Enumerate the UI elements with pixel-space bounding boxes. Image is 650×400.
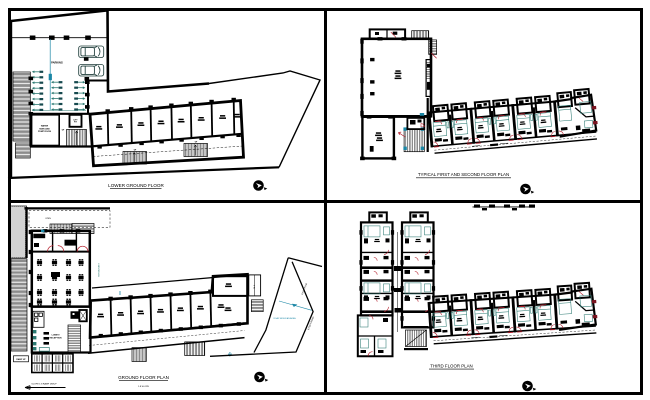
svg-text:WATER: WATER [41,125,49,128]
svg-text:PARKING: PARKING [51,61,63,65]
svg-text:SLOPE 1:8 RAMP DN/UP: SLOPE 1:8 RAMP DN/UP [31,382,57,385]
svg-text:ROAD WIDEN AN AREA: ROAD WIDEN AN AREA [273,317,296,320]
svg-text:GROUND FLOOR PLAN: GROUND FLOOR PLAN [118,375,169,380]
svg-text:RAMP UP: RAMP UP [16,358,26,361]
svg-text:RECEPTION: RECEPTION [49,337,62,339]
svg-text:RESTAURANT: RESTAURANT [98,263,101,277]
svg-text:TYPICAL FIRST AND SECOND FLOOR: TYPICAL FIRST AND SECOND FLOOR PLAN [418,172,509,177]
svg-text:THIRD FLOOR PLAN: THIRD FLOOR PLAN [430,363,472,368]
svg-text:OPEN: OPEN [45,218,51,220]
svg-text:LOBBY/: LOBBY/ [52,335,60,337]
svg-text:PUMP ROOM: PUMP ROOM [38,131,51,133]
svg-text:24-0: 24-0 [254,285,256,289]
svg-text:TANK AND: TANK AND [39,127,50,130]
svg-text:1:8 SLOPE: 1:8 SLOPE [138,386,149,388]
svg-text:LOWER GROUND FLOOR: LOWER GROUND FLOOR [108,183,164,188]
